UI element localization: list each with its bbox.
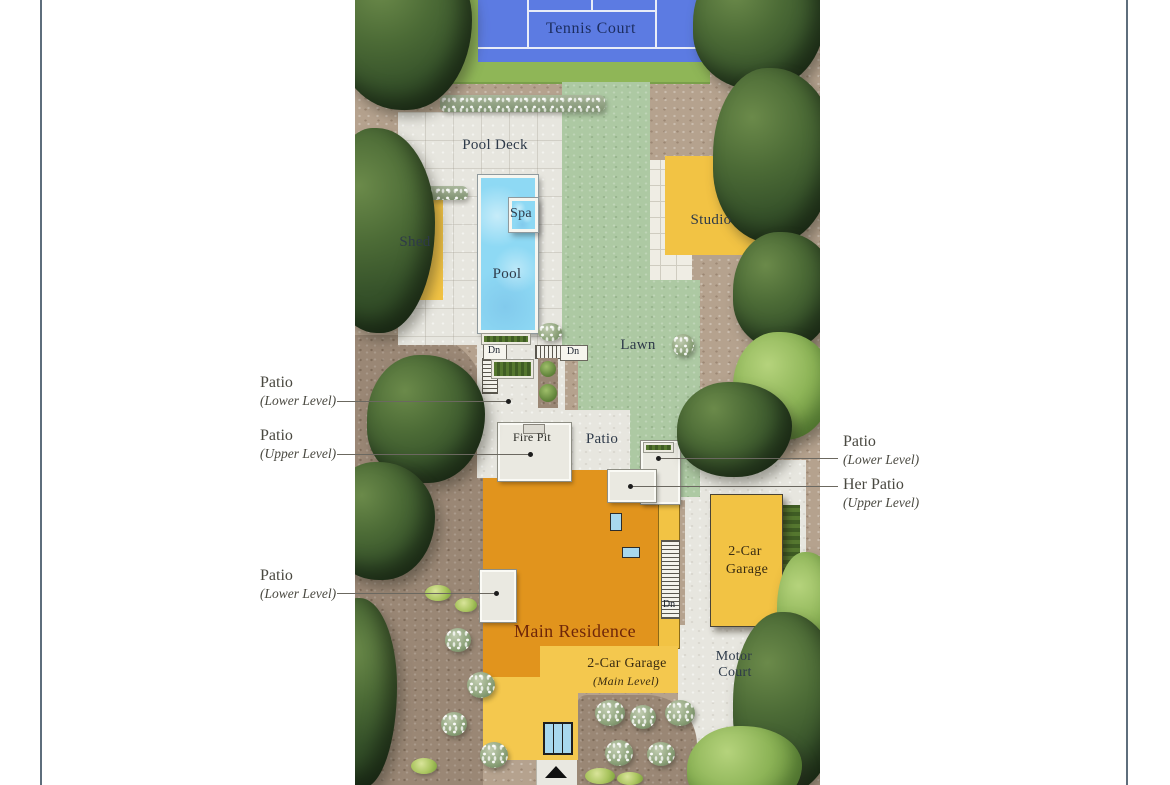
studio-label: Studio	[691, 212, 732, 229]
annotation-title: Patio	[843, 434, 919, 451]
flowering-shrub	[445, 628, 471, 652]
attached-garage-level-label: (Main Level)	[593, 674, 659, 689]
pool-deck-label: Pool Deck	[462, 137, 528, 154]
flowering-shrub	[538, 323, 562, 341]
flowering-shrub	[480, 742, 508, 768]
tree	[355, 0, 472, 110]
attached-garage-label: 2-Car Garage	[587, 656, 666, 672]
detached-garage-label-line2: Garage	[726, 562, 768, 578]
annotation-patio-upper-left: Patio (Upper Level)	[260, 428, 336, 461]
leader-dot	[628, 484, 633, 489]
plant	[539, 384, 557, 402]
grass-tuft	[585, 768, 615, 784]
garage-window	[543, 722, 573, 755]
patio-hedge	[492, 360, 533, 378]
leader-line	[660, 458, 838, 459]
flowering-shrub	[605, 740, 633, 766]
leader-line	[337, 454, 531, 455]
detached-garage-building	[710, 494, 783, 627]
detached-garage-label-line1: 2-Car	[728, 544, 761, 560]
leader-dot	[528, 452, 533, 457]
page-border-right	[1126, 0, 1128, 785]
main-residence-label: Main Residence	[514, 621, 636, 642]
patio-center-label: Patio	[586, 431, 618, 448]
leader-line	[632, 486, 838, 487]
annotation-subtitle: (Upper Level)	[260, 447, 336, 461]
annotation-title: Patio	[260, 428, 336, 445]
left-lower-patio	[480, 570, 516, 622]
dn-label: Dn	[567, 346, 579, 357]
shed-label: Shed	[399, 234, 430, 251]
leader-dot	[506, 399, 511, 404]
flowering-shrub	[647, 742, 675, 766]
annotation-title: Patio	[260, 375, 336, 392]
lawn-label: Lawn	[620, 337, 655, 354]
skylight	[610, 513, 622, 531]
leader-dot	[494, 591, 499, 596]
pool-label: Pool	[493, 266, 522, 283]
grass-tuft	[617, 772, 643, 785]
annotation-her-patio: Her Patio (Upper Level)	[843, 477, 919, 510]
skylight	[622, 547, 640, 558]
annotation-patio-lower-left: Patio (Lower Level)	[260, 375, 336, 408]
tennis-sideline-left	[527, 0, 529, 49]
flowering-shrub	[441, 712, 467, 736]
site-plan: Tennis Court Pool Deck Shed Spa Pool Stu…	[355, 0, 820, 785]
flower-bed-strip	[440, 95, 605, 112]
spa-label: Spa	[510, 206, 532, 222]
grass-tuft	[455, 598, 477, 612]
tennis-baseline	[478, 47, 705, 49]
flowering-shrub	[630, 705, 656, 729]
right-patio-planter	[644, 443, 673, 452]
dn-label: Dn	[663, 599, 675, 610]
flowering-shrub	[665, 700, 695, 726]
annotation-patio-lower-left-2: Patio (Lower Level)	[260, 568, 336, 601]
flowering-shrub	[467, 672, 495, 698]
leader-line	[337, 401, 509, 402]
motor-court-label-line2: Court	[718, 665, 751, 681]
dn-label: Dn	[488, 345, 500, 356]
leader-dot	[656, 456, 661, 461]
annotation-patio-lower-right: Patio (Lower Level)	[843, 434, 919, 467]
flowering-shrub	[672, 334, 694, 356]
annotation-subtitle: (Lower Level)	[843, 453, 919, 467]
grass-tuft	[411, 758, 437, 774]
fire-pit-label: Fire Pit	[513, 430, 551, 445]
leader-line	[337, 593, 497, 594]
annotation-subtitle: (Lower Level)	[260, 587, 336, 601]
site-plan-page: Tennis Court Pool Deck Shed Spa Pool Stu…	[0, 0, 1170, 785]
flowering-shrub	[595, 700, 625, 726]
pool-hedge	[482, 334, 530, 344]
tennis-center-line	[591, 0, 593, 11]
annotation-title: Patio	[260, 568, 336, 585]
tennis-court-label: Tennis Court	[546, 20, 636, 38]
annotation-subtitle: (Upper Level)	[843, 496, 919, 510]
entry-arrow-icon	[545, 766, 567, 778]
page-border-left	[40, 0, 42, 785]
tennis-sideline-right	[655, 0, 657, 49]
annotation-title: Her Patio	[843, 477, 919, 494]
plant	[540, 361, 556, 377]
annotation-subtitle: (Lower Level)	[260, 394, 336, 408]
patio-planter	[538, 358, 558, 408]
tree	[677, 382, 792, 477]
motor-court-label-line1: Motor	[716, 649, 753, 665]
